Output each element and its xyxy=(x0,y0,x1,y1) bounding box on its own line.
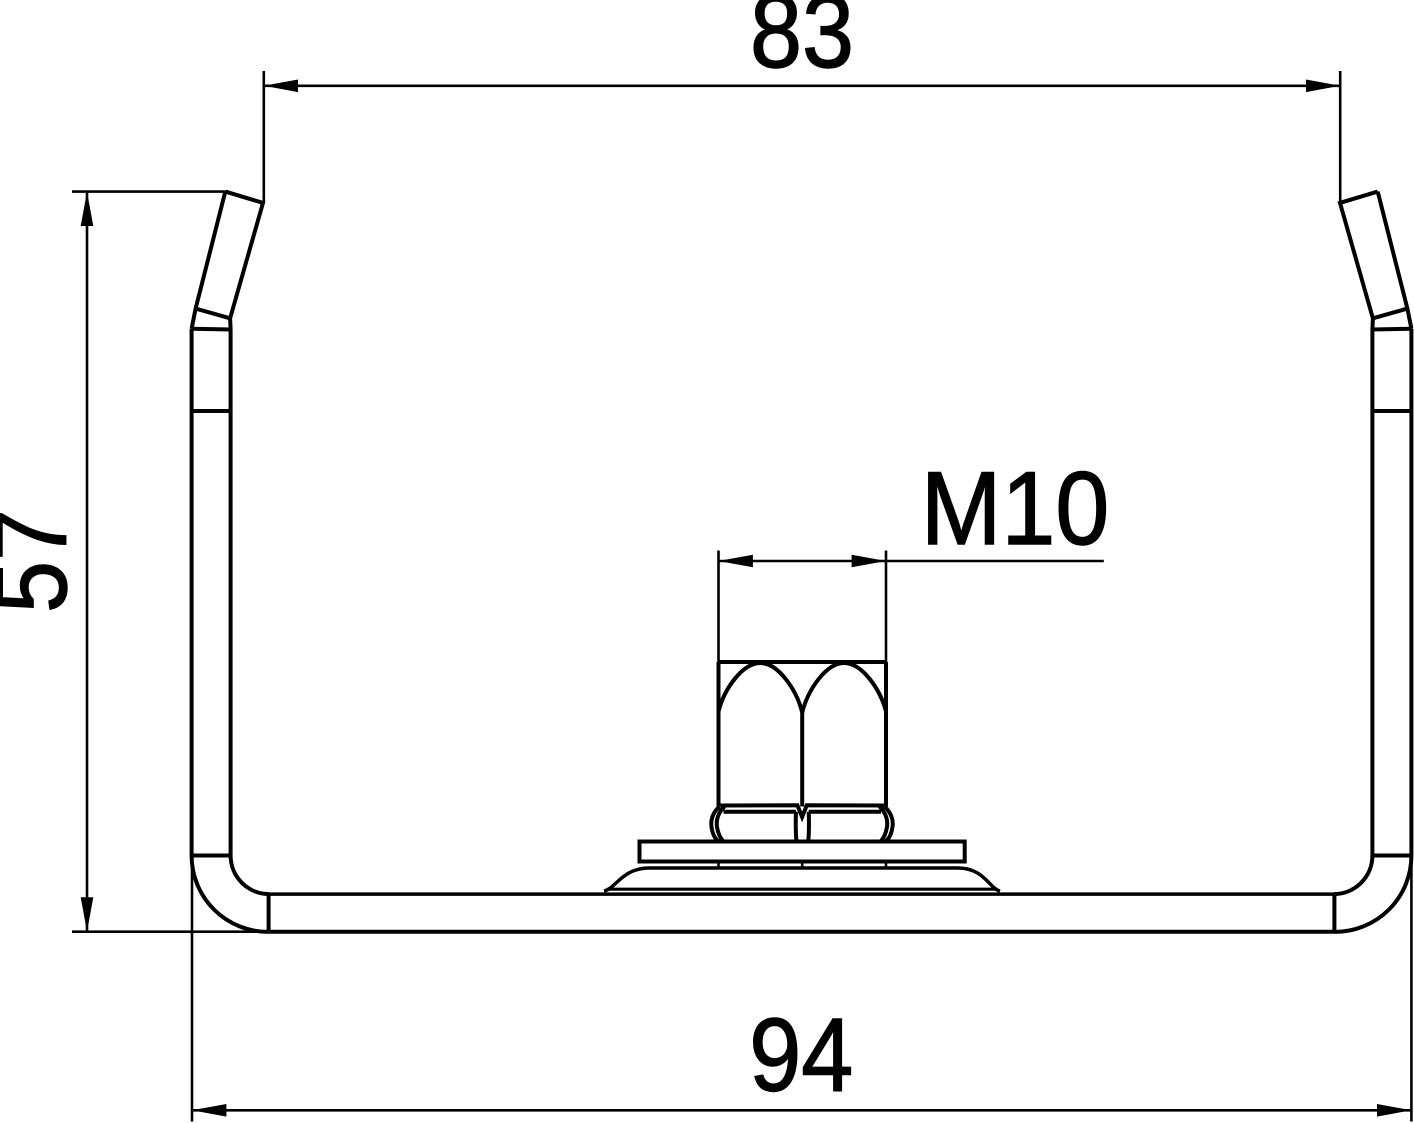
svg-text:83: 83 xyxy=(750,0,854,90)
svg-text:57: 57 xyxy=(0,509,89,613)
svg-text:M10: M10 xyxy=(921,451,1110,567)
svg-text:94: 94 xyxy=(749,998,853,1114)
